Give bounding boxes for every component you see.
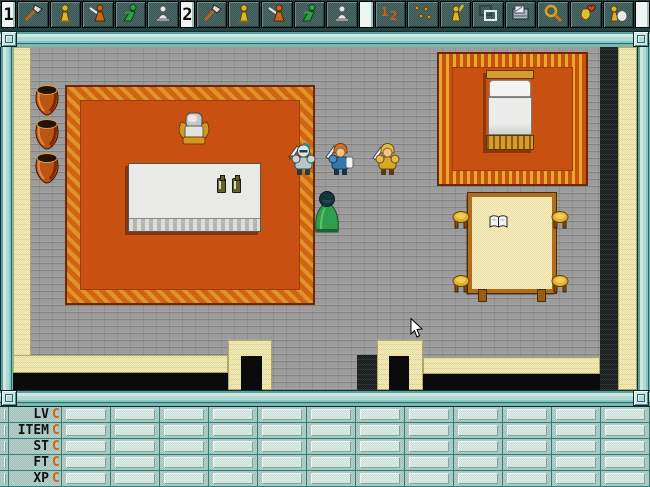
status-slot[interactable] — [356, 455, 405, 470]
scrollbar-horizontal-bottom[interactable] — [0, 390, 650, 406]
status-slot[interactable] — [111, 407, 160, 422]
status-label-text: LV — [33, 407, 49, 422]
toolbar-button-magnifier[interactable] — [537, 1, 569, 28]
toolbar-button-hand-axe[interactable] — [17, 1, 49, 28]
status-label-text: ITEM — [18, 423, 49, 438]
status-slot[interactable] — [454, 423, 503, 438]
status-slot[interactable] — [62, 423, 111, 438]
status-row-handle — [0, 407, 9, 422]
pot-shelf — [33, 83, 61, 189]
status-slot[interactable] — [552, 423, 601, 438]
status-row-xp: XPC — [0, 471, 650, 487]
status-slot[interactable] — [209, 439, 258, 454]
status-row-handle — [0, 439, 9, 454]
toolbar-button-white-kneeler[interactable] — [147, 1, 179, 28]
gold-shards-icon — [412, 3, 434, 27]
status-slot[interactable] — [209, 423, 258, 438]
status-slot[interactable] — [356, 423, 405, 438]
status-slot[interactable] — [307, 423, 356, 438]
status-slot[interactable] — [356, 439, 405, 454]
toolbar-button-gold-statue[interactable] — [50, 1, 82, 28]
gold-victor-icon — [445, 3, 467, 27]
status-slot[interactable] — [209, 455, 258, 470]
status-slot[interactable] — [160, 407, 209, 422]
wall-bottom-right — [423, 357, 600, 374]
status-slot[interactable] — [454, 407, 503, 422]
status-label-text: XP — [33, 471, 49, 486]
status-slot[interactable] — [405, 407, 454, 422]
bed — [486, 70, 534, 150]
sack-carrier-icon — [607, 3, 629, 27]
stool — [452, 209, 470, 234]
svg-text:1: 1 — [381, 5, 388, 19]
status-slot[interactable] — [552, 471, 601, 486]
knight-gold[interactable] — [370, 142, 402, 184]
status-label-text: ST — [33, 439, 49, 454]
doorway-left[interactable] — [241, 356, 262, 390]
status-slot[interactable] — [307, 407, 356, 422]
frame-tool-icon — [477, 3, 499, 27]
status-slot[interactable] — [454, 471, 503, 486]
status-value: C — [52, 455, 60, 470]
toolbar-button-frame-tool[interactable] — [472, 1, 504, 28]
status-slot[interactable] — [307, 455, 356, 470]
status-slot[interactable] — [160, 423, 209, 438]
white-kneeler-icon — [152, 3, 174, 27]
status-slot[interactable] — [258, 423, 307, 438]
status-slot[interactable] — [601, 471, 650, 486]
status-row-st: STC — [0, 439, 650, 455]
status-slot[interactable] — [356, 471, 405, 486]
status-slot[interactable] — [601, 439, 650, 454]
status-slot[interactable] — [601, 455, 650, 470]
heart-charm-icon — [575, 3, 597, 27]
status-slot[interactable] — [258, 407, 307, 422]
status-slot[interactable] — [552, 455, 601, 470]
status-slot[interactable] — [62, 439, 111, 454]
status-row-ft: FTC — [0, 455, 650, 471]
dining-table — [128, 163, 261, 232]
toolbar-button-gold-victor[interactable] — [440, 1, 472, 28]
wall-right-yellow — [618, 47, 637, 390]
status-label: ITEMC — [9, 423, 62, 438]
status-slot[interactable] — [503, 423, 552, 438]
toolbar-group-marker-2: 2 — [180, 1, 195, 28]
toolbar-button-hand-axe[interactable] — [196, 1, 228, 28]
wall-right-dark — [600, 47, 618, 390]
status-value: C — [52, 407, 60, 422]
knight-blue[interactable] — [325, 142, 355, 184]
stool — [452, 273, 470, 298]
status-slot[interactable] — [503, 439, 552, 454]
status-slot[interactable] — [552, 439, 601, 454]
status-row-handle — [0, 423, 9, 438]
bottle — [232, 178, 241, 193]
status-slot[interactable] — [111, 455, 160, 470]
bottle — [217, 178, 226, 193]
white-kneeler-icon — [331, 3, 353, 27]
magnifier-icon — [542, 3, 564, 27]
status-label: XPC — [9, 471, 62, 486]
status-slot[interactable] — [209, 471, 258, 486]
stool — [551, 273, 569, 298]
toolbar-button-orange-warrior[interactable] — [82, 1, 114, 28]
toolbar-button-gold-shards[interactable] — [407, 1, 439, 28]
bed-blanket — [488, 97, 532, 135]
gold-statue-icon — [54, 3, 76, 27]
status-row-handle — [0, 471, 9, 486]
map-viewport[interactable] — [13, 47, 637, 390]
hand-axe-icon — [201, 3, 223, 27]
toolbar-button-map-case[interactable] — [505, 1, 537, 28]
status-slot[interactable] — [111, 439, 160, 454]
status-slot[interactable] — [160, 455, 209, 470]
scrollbar-vertical-left[interactable] — [0, 47, 13, 390]
orange-warrior-icon — [266, 3, 288, 27]
scroll-button-top-right[interactable] — [633, 31, 649, 47]
status-slot[interactable] — [258, 439, 307, 454]
toolbar-button-green-runner[interactable] — [115, 1, 147, 28]
status-slot[interactable] — [405, 455, 454, 470]
game-screen: 1212 — [0, 0, 650, 487]
status-slot[interactable] — [258, 455, 307, 470]
status-slot[interactable] — [503, 407, 552, 422]
status-slot[interactable] — [503, 471, 552, 486]
status-panel: LVCITEMCSTCFTCXPC — [0, 406, 650, 487]
status-slot[interactable] — [111, 423, 160, 438]
open-book — [488, 214, 509, 234]
svg-text:2: 2 — [390, 9, 397, 23]
hand-axe-icon — [22, 3, 44, 27]
map-case-icon — [510, 3, 532, 27]
status-row-item: ITEMC — [0, 423, 650, 439]
status-label: STC — [9, 439, 62, 454]
status-slot[interactable] — [160, 471, 209, 486]
status-label-text: FT — [33, 455, 49, 470]
status-value: C — [52, 439, 60, 454]
status-row-lv: LVC — [0, 407, 650, 423]
status-slot[interactable] — [62, 455, 111, 470]
bed-pillow — [489, 80, 531, 97]
toolbar-button-swap-order[interactable]: 12 — [375, 1, 407, 28]
scroll-button-bottom-left[interactable] — [1, 390, 17, 406]
status-slot[interactable] — [454, 439, 503, 454]
gold-statue-icon — [233, 3, 255, 27]
armchair — [174, 110, 214, 150]
doorway-right[interactable] — [389, 356, 409, 390]
status-slot[interactable] — [356, 407, 405, 422]
status-slot[interactable] — [62, 407, 111, 422]
toolbar-button-gold-statue[interactable] — [228, 1, 260, 28]
status-slot[interactable] — [160, 439, 209, 454]
toolbar-marker-blank — [359, 1, 374, 28]
status-slot[interactable] — [405, 423, 454, 438]
stool — [551, 209, 569, 234]
scrollbar-vertical-right[interactable] — [637, 47, 650, 390]
mouse-cursor-icon — [410, 318, 424, 342]
wall-left-yellow — [13, 47, 31, 390]
status-slot[interactable] — [601, 423, 650, 438]
knight-silver[interactable] — [288, 142, 318, 184]
status-label: FTC — [9, 455, 62, 470]
status-slot[interactable] — [307, 439, 356, 454]
toolbar: 1212 — [0, 0, 650, 31]
status-label: LVC — [9, 407, 62, 422]
green-runner-icon — [298, 3, 320, 27]
swap-order-icon: 12 — [379, 3, 401, 27]
status-slot[interactable] — [258, 471, 307, 486]
scroll-button-top-left[interactable] — [1, 31, 17, 47]
toolbar-button-green-runner[interactable] — [294, 1, 326, 28]
status-slot[interactable] — [307, 471, 356, 486]
status-slot[interactable] — [601, 407, 650, 422]
toolbar-button-orange-warrior[interactable] — [261, 1, 293, 28]
status-slot[interactable] — [503, 455, 552, 470]
clay-pot — [36, 86, 58, 116]
wall-bottom-left — [13, 355, 228, 373]
toolbar-button-sack-carrier[interactable] — [603, 1, 635, 28]
status-value: C — [52, 423, 60, 438]
status-slot[interactable] — [405, 471, 454, 486]
status-row-handle — [0, 455, 9, 470]
status-slot[interactable] — [405, 439, 454, 454]
scrollbar-horizontal-top[interactable] — [0, 31, 650, 47]
status-slot[interactable] — [454, 455, 503, 470]
status-slot[interactable] — [62, 471, 111, 486]
green-runner-icon — [119, 3, 141, 27]
green-cloak-figure[interactable] — [310, 190, 344, 238]
toolbar-button-white-kneeler[interactable] — [326, 1, 358, 28]
toolbar-marker-blank — [635, 1, 650, 28]
orange-warrior-icon — [87, 3, 109, 27]
toolbar-button-heart-charm[interactable] — [570, 1, 602, 28]
status-value: C — [52, 471, 60, 486]
toolbar-group-marker-1: 1 — [1, 1, 16, 28]
scroll-button-bottom-right[interactable] — [633, 390, 649, 406]
status-slot[interactable] — [552, 407, 601, 422]
status-slot[interactable] — [111, 471, 160, 486]
status-slot[interactable] — [209, 407, 258, 422]
reading-table — [468, 193, 556, 293]
